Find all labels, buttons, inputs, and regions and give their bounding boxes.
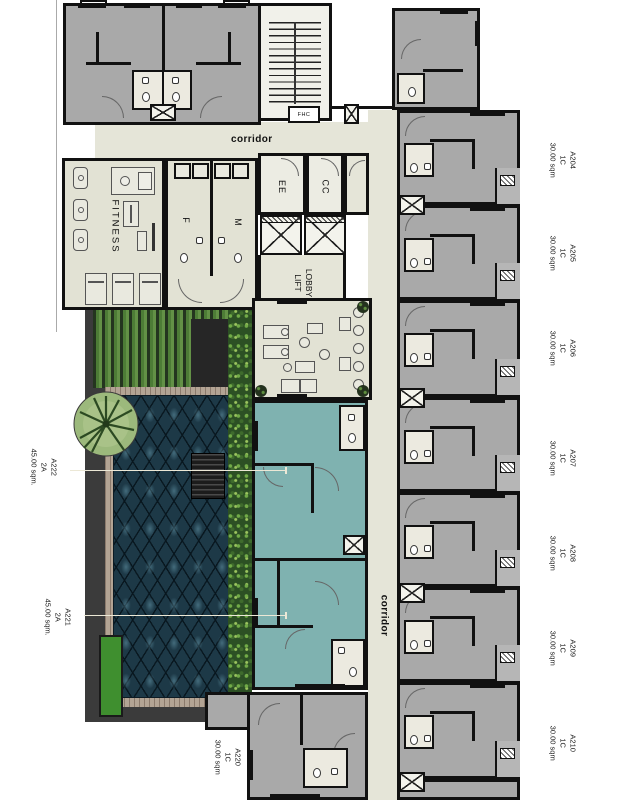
fitness-room: FITNESS <box>62 158 165 310</box>
closet-wall <box>96 32 99 64</box>
unit-name: A206 <box>568 330 578 365</box>
inner-wall <box>430 711 475 714</box>
basin-icon <box>338 647 345 654</box>
inner-wall <box>472 329 475 359</box>
lounge-room <box>252 298 372 400</box>
side-table <box>339 357 351 371</box>
unit-a220 <box>247 692 368 800</box>
chair <box>353 343 364 354</box>
utility-shaft <box>399 772 425 792</box>
unit-area: 30.00 sqm <box>548 440 558 475</box>
bathroom <box>404 333 434 367</box>
hedge-column <box>228 303 252 722</box>
corridor-vertical-label: corridor <box>368 585 400 645</box>
toilet-icon <box>313 768 321 778</box>
plant-icon <box>357 301 369 313</box>
lift-shaft <box>304 215 346 255</box>
exercise-bike <box>73 167 88 189</box>
lift-door-hatch <box>262 217 300 223</box>
bench <box>137 231 147 251</box>
unit-label-a205: A205 1C 30.00 sqm <box>535 225 591 281</box>
toilet-icon <box>142 92 150 102</box>
door-arc <box>321 158 339 176</box>
unit-a206 <box>397 300 520 397</box>
unit-type: 1C <box>558 330 568 365</box>
bathroom <box>404 525 434 559</box>
sofa <box>281 379 317 393</box>
unit-area: 30.00 sqm <box>548 725 558 760</box>
unit-name: A209 <box>568 630 578 665</box>
unit-label-a208: A208 1C 30.00 sqm <box>535 525 591 581</box>
corridor-top-wall <box>332 106 398 109</box>
leader-tick-a222 <box>285 467 287 474</box>
exercise-bike <box>73 229 88 251</box>
inner-wall <box>430 616 475 619</box>
unit-block-2a <box>252 400 368 690</box>
lift-lobby-line2: LOBBY <box>303 269 314 297</box>
basin-icon <box>218 237 225 244</box>
unit-name: A205 <box>568 235 578 270</box>
unit-area: 45.00 sqm. <box>29 448 39 485</box>
door-arc <box>401 39 421 59</box>
table <box>307 323 323 334</box>
unit-name: A220 <box>233 739 243 774</box>
toilet-icon <box>410 735 418 745</box>
inner-wall <box>423 69 463 72</box>
lounger <box>85 273 107 305</box>
balcony <box>495 359 520 395</box>
door-arc <box>220 279 244 303</box>
unit-block-top-left <box>63 3 261 125</box>
door-arc <box>258 703 280 725</box>
lounger <box>112 273 134 305</box>
toilet-icon <box>410 450 418 460</box>
inner-wall <box>277 561 280 627</box>
window-bar <box>295 684 345 690</box>
stair-divider <box>294 22 296 104</box>
fhc-box: FHC <box>288 106 320 123</box>
basin-icon <box>424 545 431 552</box>
chair <box>353 325 364 336</box>
window-bar <box>470 205 505 211</box>
toilet-icon <box>180 253 188 263</box>
unit-type: 2A <box>53 598 63 635</box>
inner-wall <box>472 711 475 741</box>
utility-shaft <box>399 195 425 215</box>
chair <box>281 348 289 356</box>
inner-wall <box>430 139 475 142</box>
unit-a205 <box>397 205 520 300</box>
unit-type: 1C <box>558 440 568 475</box>
treadmill <box>123 201 139 227</box>
toilet-icon <box>410 163 418 173</box>
unit-label-a221: A221 2A 45.00 sqm. <box>30 589 86 645</box>
unit-area: 30.00 sqm <box>213 739 223 774</box>
door-arc <box>102 96 124 118</box>
window-bar <box>470 492 505 498</box>
unit-a210 <box>397 682 520 779</box>
lounger-pillow <box>88 281 104 283</box>
toilet-icon <box>410 353 418 363</box>
floor-plan: corridor corridor <box>0 0 620 800</box>
stair-flight <box>269 22 294 104</box>
window-bar <box>253 421 258 451</box>
basin-icon <box>424 735 431 742</box>
basin-icon <box>331 768 338 775</box>
cc-label: CC <box>305 180 345 194</box>
unit-divider-wall <box>255 558 365 561</box>
shower-stall <box>214 163 231 179</box>
toilet-icon <box>410 545 418 555</box>
male-label: M <box>228 215 248 229</box>
leader-tick-a221 <box>285 612 287 619</box>
door-arc <box>349 160 365 176</box>
inner-wall <box>430 521 475 524</box>
inner-wall <box>255 625 313 628</box>
unit-a204 <box>397 110 520 205</box>
door-arc <box>178 279 202 303</box>
door-arc <box>405 688 425 708</box>
stair-core <box>258 3 332 121</box>
balcony <box>495 550 520 586</box>
ac-unit <box>500 652 515 663</box>
unit-type: 2A <box>39 448 49 485</box>
unit-area: 30.00 sqm <box>548 235 558 270</box>
machine-seat <box>138 172 152 190</box>
corridor-horizontal-label: corridor <box>231 134 273 145</box>
unit-label-a209: A209 1C 30.00 sqm <box>535 620 591 676</box>
utility-shaft <box>343 535 365 555</box>
tree-icon <box>72 390 140 458</box>
inner-wall <box>196 62 241 65</box>
pool-bench-grille <box>191 453 225 499</box>
door-arc <box>405 498 425 518</box>
balcony <box>495 455 520 491</box>
ac-unit <box>500 270 515 281</box>
unit-type: 1C <box>558 235 568 270</box>
window-bar <box>470 110 505 116</box>
utility-shaft <box>344 104 359 124</box>
lift-shaft <box>260 215 302 255</box>
bathroom <box>404 238 434 272</box>
window-bar <box>475 21 480 46</box>
inner-wall <box>472 521 475 551</box>
treadmill-belt <box>130 205 132 223</box>
toilet-icon <box>410 640 418 650</box>
side-room <box>344 153 369 215</box>
door-arc <box>315 467 339 491</box>
unit-a208 <box>397 492 520 587</box>
inner-wall <box>430 329 475 332</box>
unit-label-a210: A210 1C 30.00 sqm <box>535 715 591 771</box>
basin-icon <box>172 77 179 84</box>
side-table <box>339 317 351 331</box>
basin-icon <box>348 414 355 421</box>
ac-unit <box>500 366 515 377</box>
unit-label-a204: A204 1C 30.00 sqm <box>535 132 591 188</box>
unit-a220-wing <box>205 692 253 730</box>
stair-flight <box>296 22 321 104</box>
inner-wall <box>472 234 475 264</box>
bathroom <box>303 748 348 788</box>
balcony <box>495 168 520 204</box>
window-bar <box>253 598 258 628</box>
unit-area: 30.00 sqm <box>548 630 558 665</box>
plant-icon <box>357 385 369 397</box>
bike-wheel <box>78 207 84 213</box>
ac-unit <box>500 557 515 568</box>
table <box>295 361 315 373</box>
toilet-icon <box>349 667 357 677</box>
party-wall <box>162 6 165 70</box>
basin-icon <box>424 163 431 170</box>
lift-lobby-label: LIFT LOBBY <box>283 268 323 298</box>
unit-top-right <box>392 8 480 110</box>
balcony <box>495 263 520 299</box>
leader-line-a222 <box>70 470 286 471</box>
bathroom-a221 <box>331 639 365 687</box>
toilet-icon <box>172 92 180 102</box>
inner-wall <box>472 616 475 646</box>
unit-name: A210 <box>568 725 578 760</box>
female-label: F <box>176 213 196 227</box>
unit-type: 1C <box>558 535 568 570</box>
door-arc <box>200 96 222 118</box>
unit-area: 30.00 sqm <box>548 535 558 570</box>
toilet-icon <box>410 258 418 268</box>
shower-stall <box>192 163 209 179</box>
unit-a207 <box>397 397 520 492</box>
unit-label-a222: A222 2A 45.00 sqm. <box>16 439 72 495</box>
cc-room: CC <box>306 153 344 215</box>
door-arc <box>281 158 299 176</box>
window-bar <box>440 8 468 14</box>
lift-lobby-line1: LIFT <box>292 274 303 291</box>
window-bar <box>470 397 505 403</box>
window-bar <box>78 3 106 8</box>
toilet-icon <box>408 87 416 97</box>
bathroom <box>404 430 434 464</box>
unit-label-a207: A207 1C 30.00 sqm <box>535 430 591 486</box>
weight-machine <box>111 167 155 195</box>
toilet-icon <box>234 253 242 263</box>
toilets-room: F M <box>165 158 258 310</box>
window-bar <box>277 298 307 304</box>
door-arc <box>315 581 339 605</box>
basin-icon <box>142 77 149 84</box>
sofa-divider <box>299 380 301 392</box>
basin-icon <box>424 258 431 265</box>
inner-wall <box>255 463 313 466</box>
plant-icon <box>255 385 267 397</box>
utility-shaft <box>150 104 176 121</box>
machine-wheel <box>120 176 130 186</box>
lounger <box>139 273 161 305</box>
chair <box>353 361 364 372</box>
leader-line-a221 <box>84 615 286 616</box>
inner-wall <box>300 695 303 745</box>
balcony <box>495 645 520 681</box>
round-table <box>283 363 292 372</box>
utility-shaft <box>399 583 425 603</box>
bathroom-a222 <box>339 405 365 451</box>
unit-name: A222 <box>49 448 59 485</box>
utility-shaft <box>399 388 425 408</box>
window-bar <box>124 3 150 8</box>
unit-label-a206: A206 1C 30.00 sqm <box>535 320 591 376</box>
window-bar <box>470 587 505 593</box>
unit-area: 45.00 sqm. <box>43 598 53 635</box>
exercise-bike <box>73 199 88 221</box>
weight-rack <box>152 223 155 251</box>
round-table <box>319 349 330 360</box>
inner-wall <box>472 426 475 456</box>
unit-type: 1C <box>223 739 233 774</box>
unit-area: 30.00 sqm <box>548 330 558 365</box>
ac-unit <box>500 462 515 473</box>
unit-name: A207 <box>568 440 578 475</box>
unit-name: A221 <box>63 598 73 635</box>
bathroom <box>404 143 434 177</box>
bike-wheel <box>78 175 84 181</box>
window-bar <box>470 300 505 306</box>
closet-wall <box>228 32 231 64</box>
door-arc <box>285 629 305 649</box>
toilet-icon <box>348 433 356 443</box>
shower-stall <box>174 163 191 179</box>
door-arc <box>405 116 425 136</box>
window-bar <box>470 682 505 688</box>
basin-icon <box>424 640 431 647</box>
unit-type: 1C <box>558 725 568 760</box>
round-table <box>299 337 310 348</box>
ee-room: EE <box>258 153 306 215</box>
garden-area <box>85 303 252 722</box>
chair <box>281 328 289 336</box>
basin-icon <box>196 237 203 244</box>
window-bar <box>176 3 202 8</box>
bathroom <box>404 715 434 749</box>
unit-name: A204 <box>568 142 578 177</box>
bath-divider <box>162 72 164 108</box>
inner-wall <box>472 139 475 169</box>
basin-icon <box>424 450 431 457</box>
unit-type: 1C <box>558 142 568 177</box>
inner-wall <box>430 234 475 237</box>
corridor-vertical <box>368 110 400 800</box>
ee-label: EE <box>262 180 302 194</box>
basin-icon <box>424 353 431 360</box>
ac-unit <box>500 175 515 186</box>
unit-area: 30.00 sqm <box>548 142 558 177</box>
lounger-pillow <box>142 281 158 283</box>
bike-wheel <box>78 237 84 243</box>
inner-wall <box>311 463 314 513</box>
ac-unit <box>500 748 515 759</box>
unit-type: 1C <box>558 630 568 665</box>
lounger-pillow <box>115 281 131 283</box>
bathroom <box>404 620 434 654</box>
door-arc <box>405 306 425 326</box>
window-bar <box>218 3 246 8</box>
balcony <box>495 741 520 777</box>
unit-label-a220: A220 1C 30.00 sqm <box>200 729 256 785</box>
fhc-label: FHC <box>298 112 311 118</box>
grass-strip <box>99 635 123 717</box>
bathroom <box>397 73 425 104</box>
inner-wall <box>430 426 475 429</box>
inner-wall <box>86 62 131 65</box>
shower-stall <box>232 163 249 179</box>
lift-door-hatch <box>306 217 344 223</box>
window-bar <box>270 794 320 800</box>
unit-name: A208 <box>568 535 578 570</box>
boundary-line <box>56 0 57 332</box>
mf-divider <box>210 161 213 276</box>
